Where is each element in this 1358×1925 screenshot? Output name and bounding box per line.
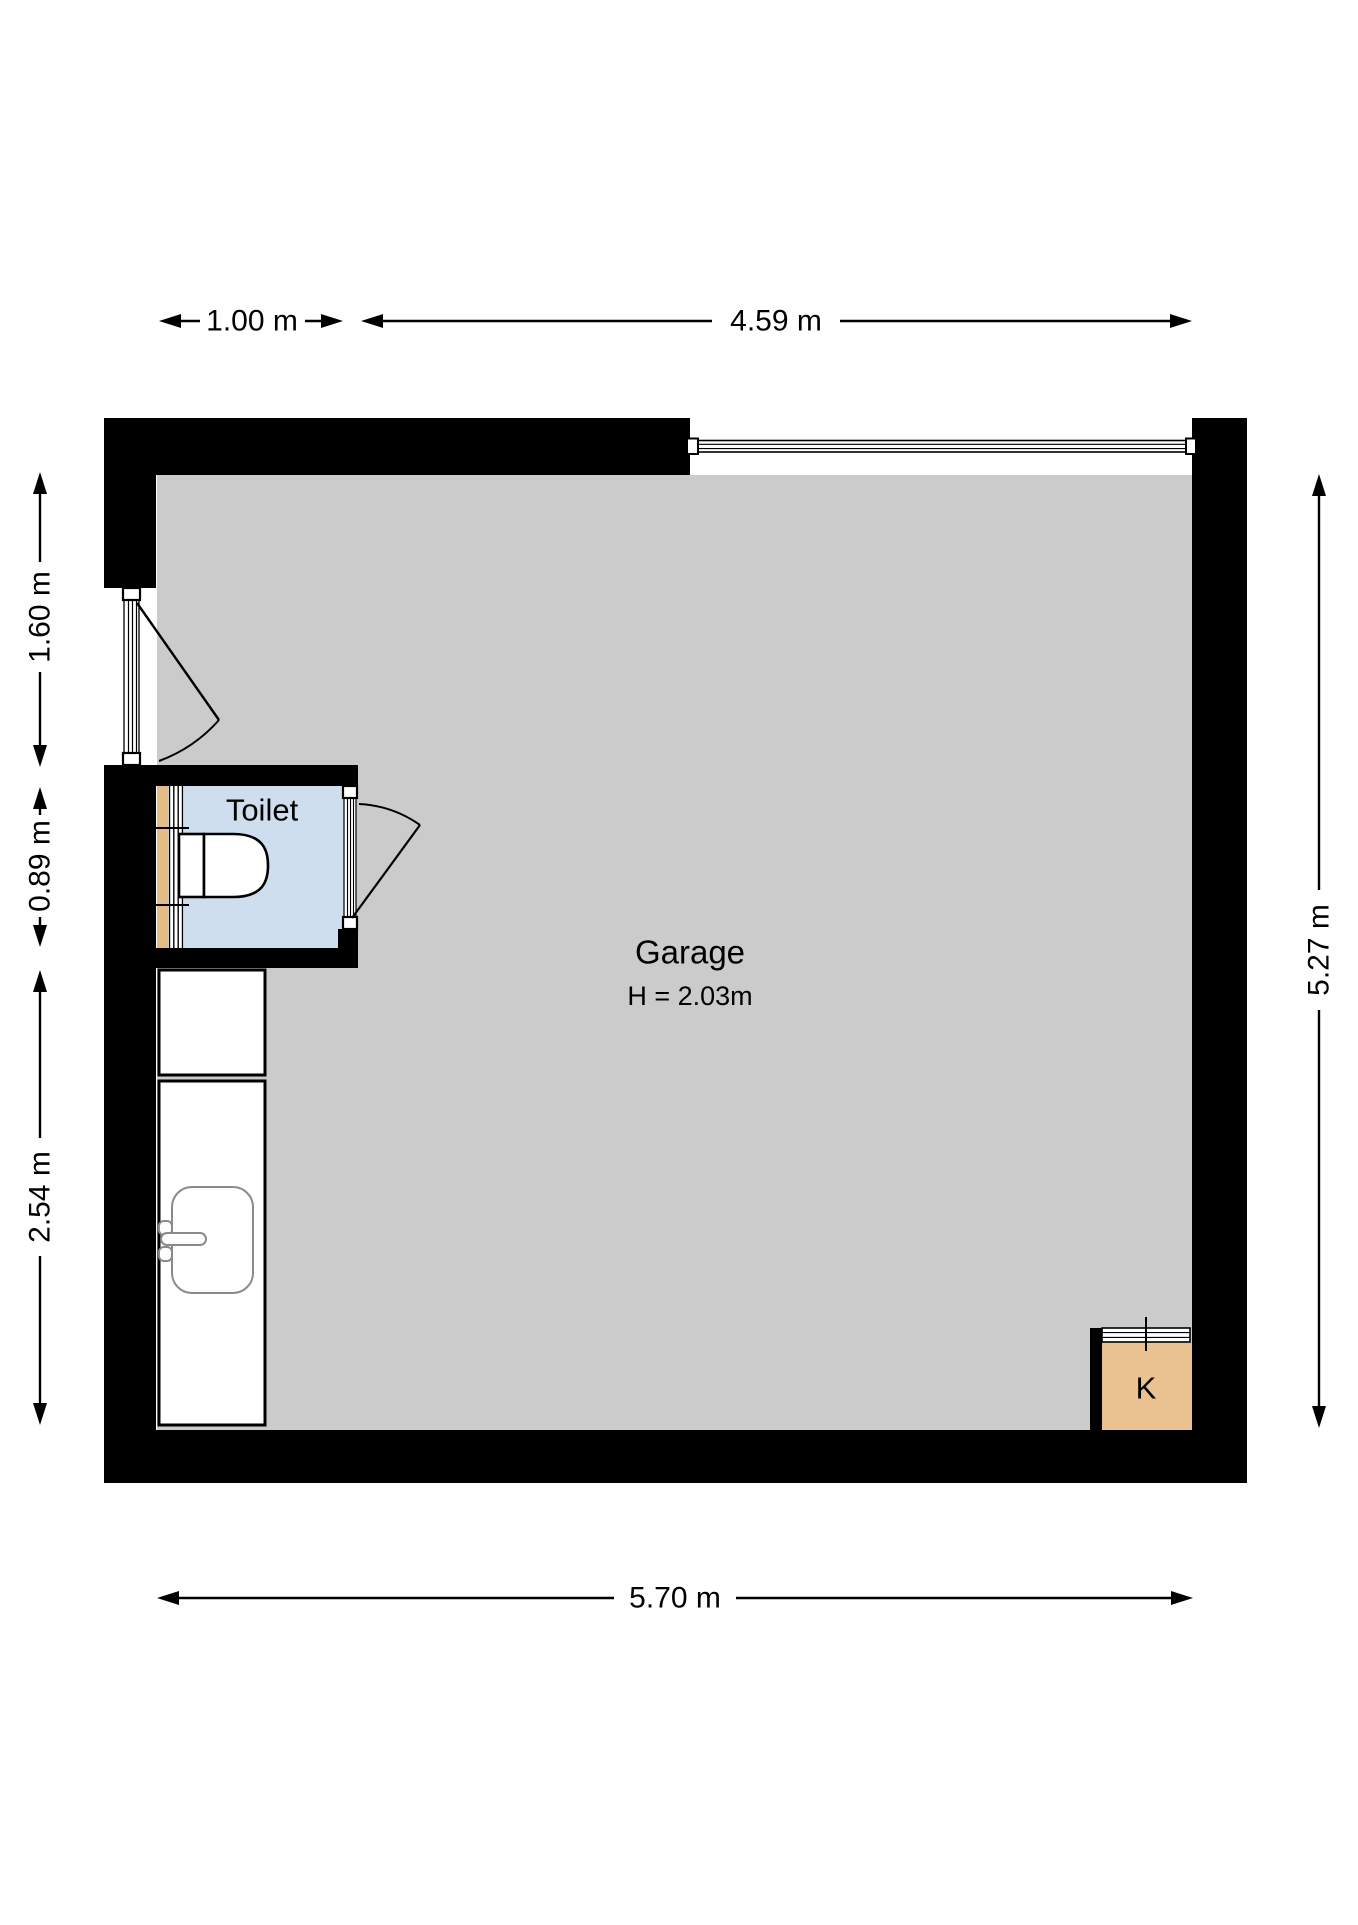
garage-door: [687, 439, 1196, 455]
sink: [159, 1187, 253, 1293]
k-room-label: K: [1136, 1371, 1157, 1406]
entrance-door-hinge-top: [123, 588, 140, 600]
toilet-wall-top: [104, 765, 358, 786]
dim-label-top-left: 1.00 m: [206, 305, 298, 338]
garage-height-label: H = 2.03m: [627, 981, 752, 1011]
wall-right: [1192, 418, 1247, 1483]
toilet-tank: [179, 834, 204, 897]
garage-door-rail: [698, 441, 1186, 453]
toilet-door-hinge-bottom: [343, 917, 357, 929]
dim-label-left-upper: 1.60 m: [24, 571, 57, 663]
toilet-wall-bottom: [104, 948, 358, 968]
arrowhead-down: [1312, 1406, 1326, 1428]
wall-left-upper: [104, 418, 156, 588]
wall-top: [104, 418, 690, 475]
wall-left-lower: [104, 765, 156, 1483]
toilet-fixture: [179, 834, 268, 897]
floor-plan-page: Garage H = 2.03m Toilet K 1.00 m 4.59 m …: [0, 0, 1358, 1920]
dim-label-left-lower: 2.54 m: [24, 1151, 57, 1243]
arrowhead-left: [159, 314, 181, 328]
dim-label-top-right: 4.59 m: [730, 305, 822, 338]
toilet-door-hinge-top: [343, 786, 357, 798]
arrowhead-up: [33, 787, 47, 809]
arrowhead-left: [157, 1591, 179, 1605]
cupboard-unit: [159, 970, 265, 1075]
floor-plan-drawing: Garage H = 2.03m Toilet K 1.00 m 4.59 m …: [0, 0, 1358, 1920]
toilet-room-label: Toilet: [226, 793, 299, 828]
garage-room-label: Garage: [635, 934, 745, 971]
toilet-wall-stub: [338, 929, 358, 948]
garage-door-post-left: [687, 439, 698, 455]
arrowhead-up: [1312, 474, 1326, 496]
toilet-window-sill: [157, 786, 168, 948]
dim-label-right: 5.27 m: [1303, 904, 1336, 996]
arrowhead-up: [33, 472, 47, 494]
toilet-bowl: [204, 834, 268, 897]
faucet-spout: [161, 1233, 206, 1245]
arrowhead-right: [1171, 1591, 1193, 1605]
k-wall: [1090, 1328, 1102, 1430]
arrowhead-up: [33, 970, 47, 992]
dim-label-left-middle: 0.89 m: [24, 820, 57, 912]
entrance-door-hinge-bottom: [123, 753, 140, 765]
dim-label-bottom: 5.70 m: [629, 1582, 721, 1615]
arrowhead-left: [361, 314, 383, 328]
wall-bottom: [104, 1430, 1247, 1483]
arrowhead-right: [321, 314, 343, 328]
arrowhead-down: [33, 745, 47, 767]
arrowhead-down: [33, 925, 47, 947]
garage-door-post-right: [1186, 439, 1196, 455]
faucet-handle: [159, 1247, 172, 1261]
arrowhead-down: [33, 1403, 47, 1425]
arrowhead-right: [1170, 314, 1192, 328]
